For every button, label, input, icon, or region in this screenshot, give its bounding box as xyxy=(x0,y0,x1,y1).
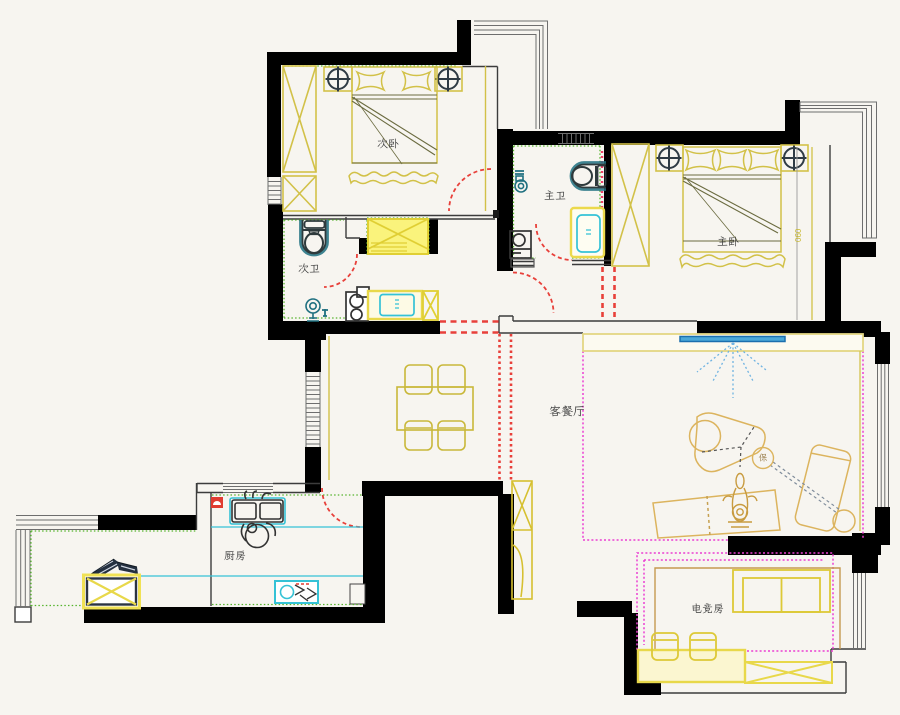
svg-text:060: 060 xyxy=(794,228,803,242)
